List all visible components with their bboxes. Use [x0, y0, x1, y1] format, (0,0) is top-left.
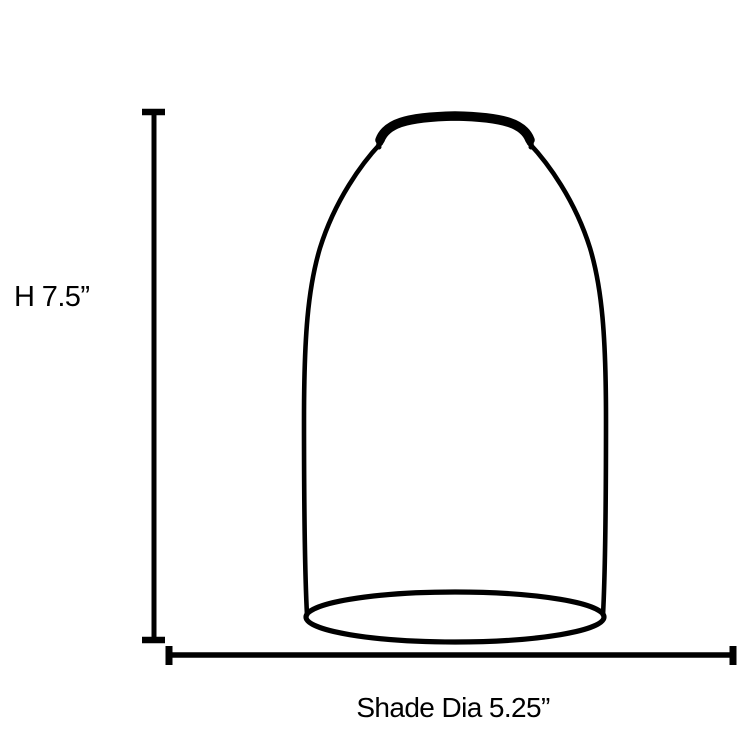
shade-dimension-diagram: H 7.5” Shade Dia 5.25”: [0, 0, 750, 750]
diagram-canvas: H 7.5” Shade Dia 5.25”: [0, 0, 750, 750]
shade-wall-left: [304, 143, 381, 615]
shade-bottom-rim: [306, 592, 604, 642]
height-dimension-label: H 7.5”: [14, 281, 89, 313]
shade-fitter-collar: [380, 116, 530, 140]
shade-outline-group: [304, 116, 606, 642]
shade-wall-right: [529, 143, 606, 615]
diameter-dimension-label: Shade Dia 5.25”: [356, 692, 550, 723]
height-dimension-group: [142, 112, 165, 640]
diameter-dimension-group: [169, 646, 734, 665]
